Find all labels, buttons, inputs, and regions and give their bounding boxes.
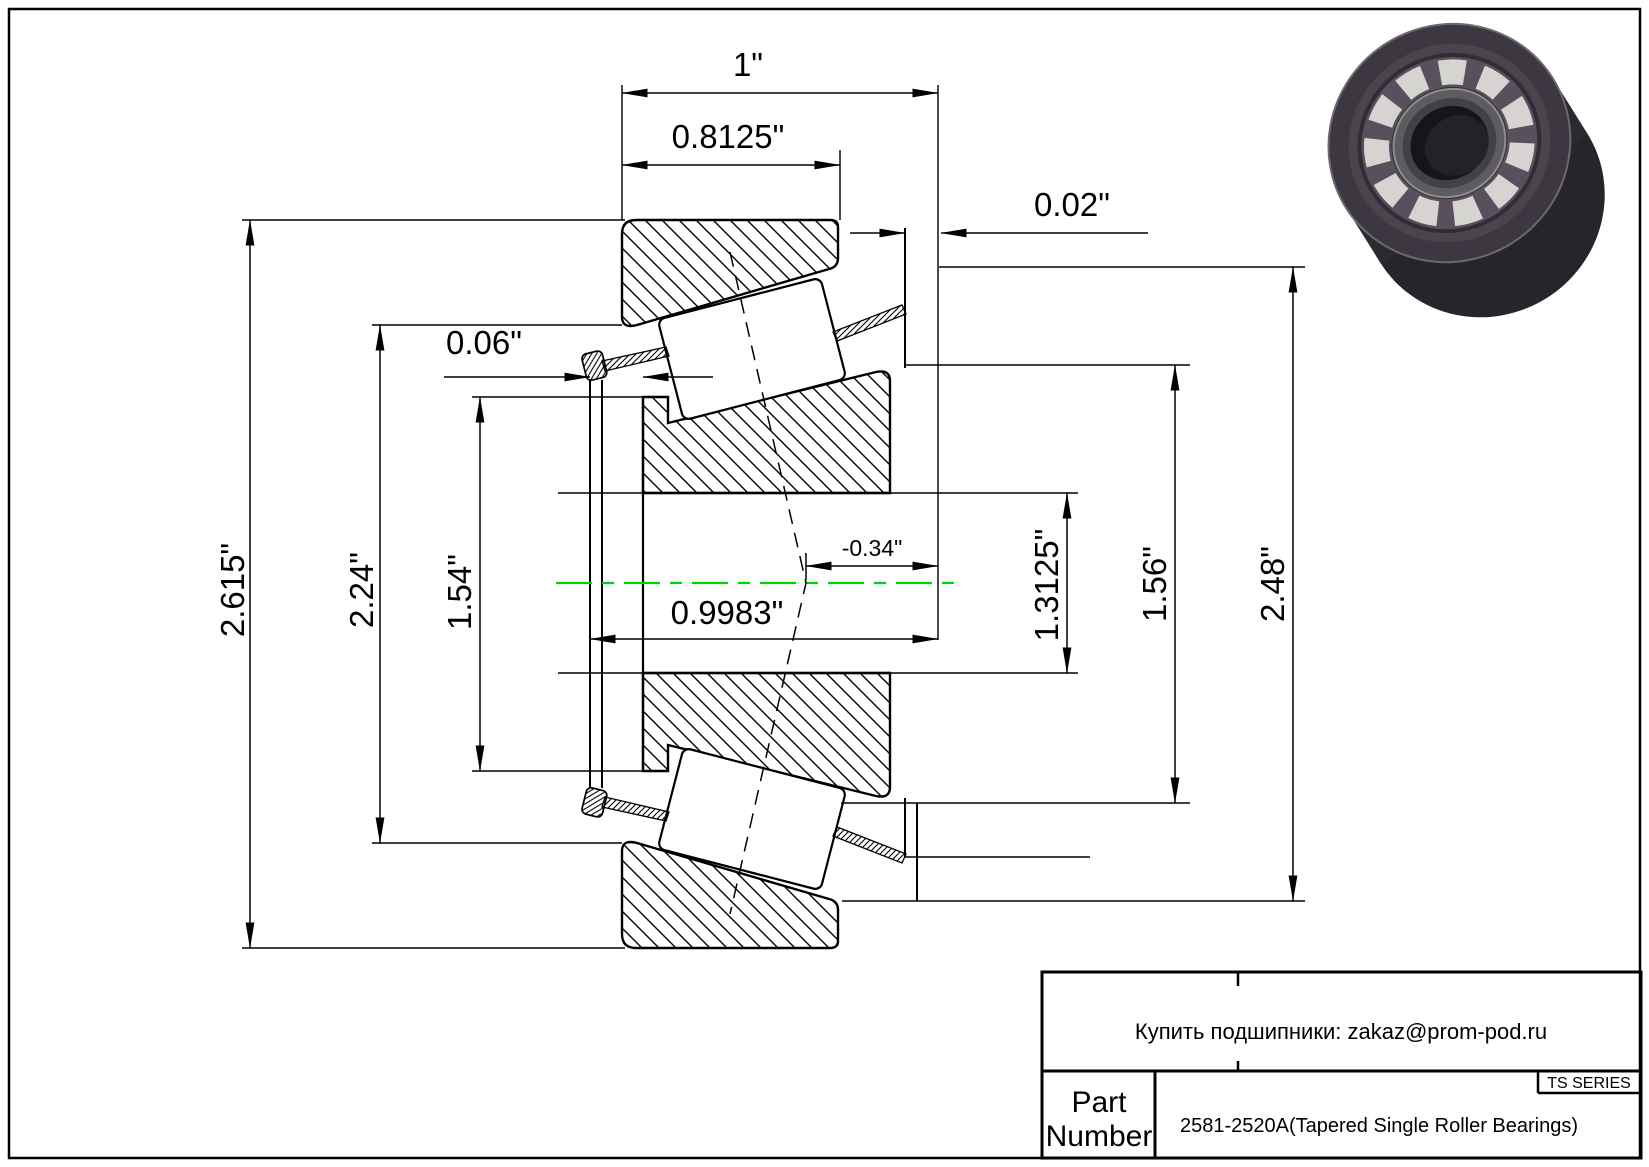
drawing-page: 1" 0.8125" 0.02" 0.06" -0.34" 0.9983" 2.…: [0, 0, 1649, 1167]
series-label: TS SERIES: [1547, 1075, 1631, 1092]
dim-back-diameter: 1.56": [1136, 546, 1173, 622]
part-label-line1: Part: [1071, 1086, 1127, 1119]
dim-cage-width: 0.9983": [671, 594, 784, 631]
dim-back-protrusion: 0.02": [1034, 186, 1110, 223]
tapered-rollers: [658, 278, 847, 891]
dim-outer-diameter: 2.48": [1254, 546, 1291, 622]
dim-cup-width: 0.8125": [672, 118, 785, 155]
bearing-3d-render: [1283, 0, 1649, 363]
dim-total-width: 1": [733, 46, 763, 83]
seller-note: Купить подшипники: zakaz@prom-pod.ru: [1135, 1019, 1547, 1044]
dim-cage-diameter: 2.24": [343, 552, 380, 628]
dim-bore-diameter: 1.3125": [1028, 529, 1065, 642]
bearing-technical-drawing: 1" 0.8125" 0.02" 0.06" -0.34" 0.9983" 2.…: [0, 0, 1649, 1167]
cage-lip-lower: [581, 787, 608, 818]
part-number-value: 2581-2520A(Tapered Single Roller Bearing…: [1180, 1115, 1578, 1137]
dim-front-diameter: 1.54": [441, 554, 478, 630]
title-block: Купить подшипники: zakaz@prom-pod.ru TS …: [1042, 972, 1641, 1158]
part-label-line2: Number: [1046, 1120, 1153, 1153]
dim-front-protrusion: 0.06": [446, 324, 522, 361]
dim-effective-center: -0.34": [842, 535, 903, 561]
dim-flange-diameter: 2.615": [214, 543, 251, 637]
